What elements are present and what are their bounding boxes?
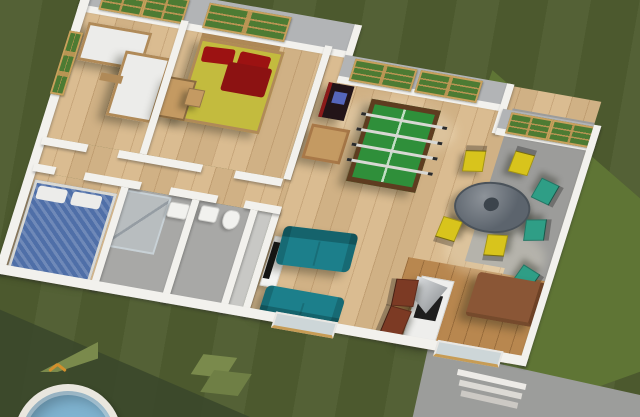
foosball-rod [347, 158, 433, 176]
yellow-chair-1 [462, 150, 486, 172]
teal-chair-2 [523, 219, 547, 240]
pillow [70, 191, 103, 209]
foosball-rod [361, 112, 447, 130]
home-design-3d-viewport[interactable] [0, 0, 640, 417]
pillow [35, 185, 68, 203]
red-duvet [220, 62, 273, 98]
orange-marker [48, 362, 68, 374]
arcade-screen [331, 91, 347, 105]
foosball-rod [356, 127, 442, 145]
yellow-chair-4 [483, 234, 508, 257]
foosball-rod [351, 143, 437, 161]
